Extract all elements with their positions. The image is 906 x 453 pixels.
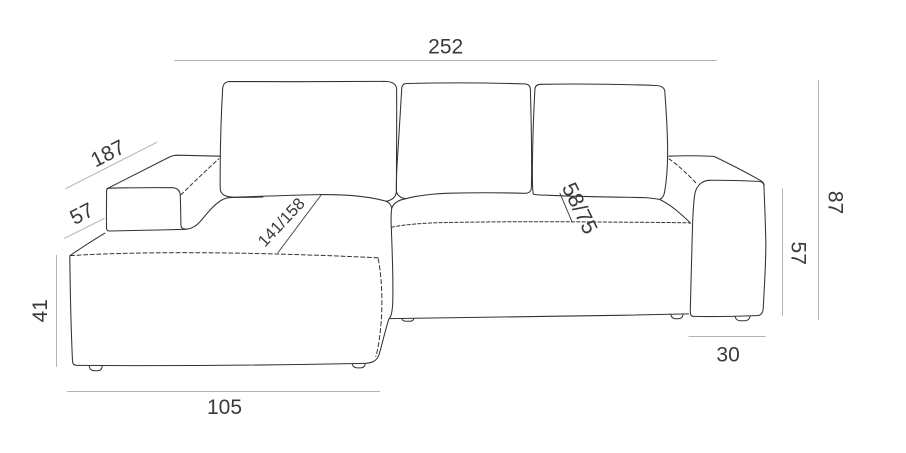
svg-text:57: 57 (66, 199, 97, 230)
svg-text:187: 187 (87, 136, 129, 172)
svg-text:30: 30 (716, 344, 739, 367)
svg-text:41: 41 (29, 299, 52, 322)
svg-text:87: 87 (823, 191, 846, 214)
svg-text:252: 252 (428, 35, 463, 58)
svg-text:58/75: 58/75 (557, 178, 603, 238)
svg-text:105: 105 (207, 396, 242, 419)
svg-text:57: 57 (786, 242, 809, 265)
